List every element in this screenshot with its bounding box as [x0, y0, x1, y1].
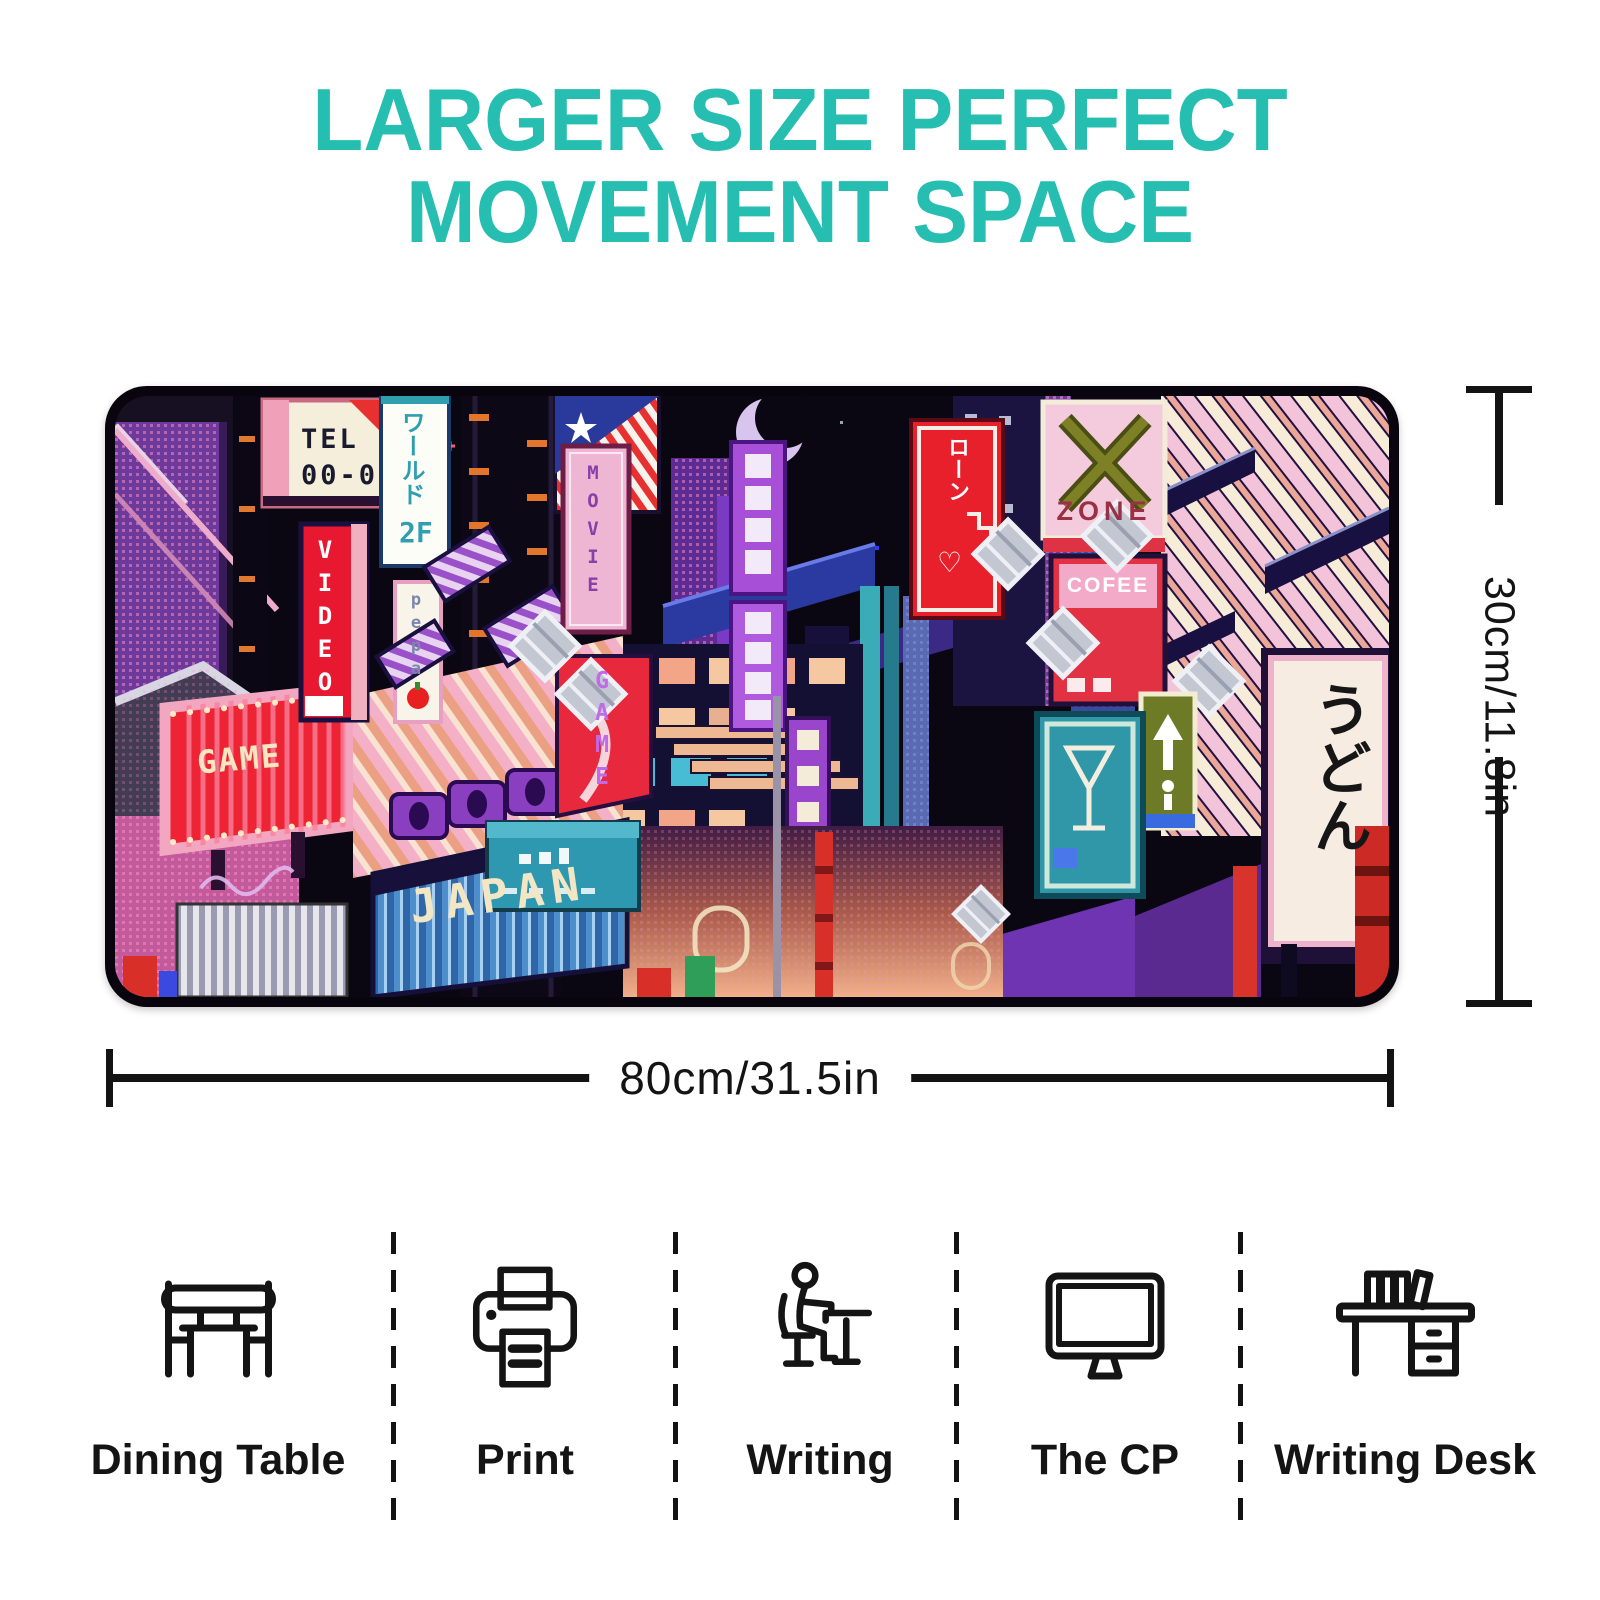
loan-sign	[911, 420, 1003, 618]
headline: LARGER SIZE PERFECT MOVEMENT SPACE	[40, 74, 1560, 257]
dimension-cap	[106, 1049, 113, 1107]
writing-desk-icon	[1240, 1248, 1570, 1408]
arrow-sign	[1141, 694, 1195, 828]
world-sign	[381, 396, 449, 566]
product-infographic: LARGER SIZE PERFECT MOVEMENT SPACE	[0, 0, 1600, 1600]
feature-the-cp: The CP	[940, 1248, 1270, 1485]
feature-label: The CP	[940, 1436, 1270, 1485]
dining-table-icon	[53, 1248, 383, 1408]
width-dimension-marker: 80cm/31.5in	[106, 1049, 1394, 1107]
computer-icon	[940, 1248, 1270, 1408]
bar-window	[1037, 714, 1143, 896]
dimension-cap	[1466, 386, 1532, 393]
feature-print: Print	[360, 1248, 690, 1485]
width-dimension-label: 80cm/31.5in	[589, 1051, 911, 1105]
mousepad-artwork: TEL 00-0 ワールド 2F VIDEO pepa MOVIE GAME G…	[115, 396, 1389, 997]
feature-writing: Writing	[655, 1248, 985, 1485]
headline-line1: LARGER SIZE PERFECT	[40, 74, 1560, 166]
pixel-city-art	[115, 396, 1389, 997]
dimension-cap	[1387, 1049, 1394, 1107]
feature-dining-table: Dining Table	[53, 1248, 383, 1485]
movie-sign	[563, 446, 629, 632]
feature-writing-desk: Writing Desk	[1240, 1248, 1570, 1485]
mousepad-image: TEL 00-0 ワールド 2F VIDEO pepa MOVIE GAME G…	[105, 386, 1399, 1007]
video-sign	[301, 524, 367, 720]
feature-label: Writing	[655, 1436, 985, 1485]
feature-label: Dining Table	[53, 1436, 383, 1485]
headline-line2: MOVEMENT SPACE	[40, 166, 1560, 258]
feature-label: Print	[360, 1436, 690, 1485]
printer-icon	[360, 1248, 690, 1408]
height-dimension-marker: 30cm/11.8in	[1466, 386, 1532, 1007]
teal-sign	[487, 822, 639, 910]
writing-icon	[655, 1248, 985, 1408]
dimension-line	[1495, 393, 1503, 505]
dimension-cap	[1466, 1000, 1532, 1007]
dimension-line	[1495, 757, 1503, 1000]
feature-label: Writing Desk	[1240, 1436, 1570, 1485]
